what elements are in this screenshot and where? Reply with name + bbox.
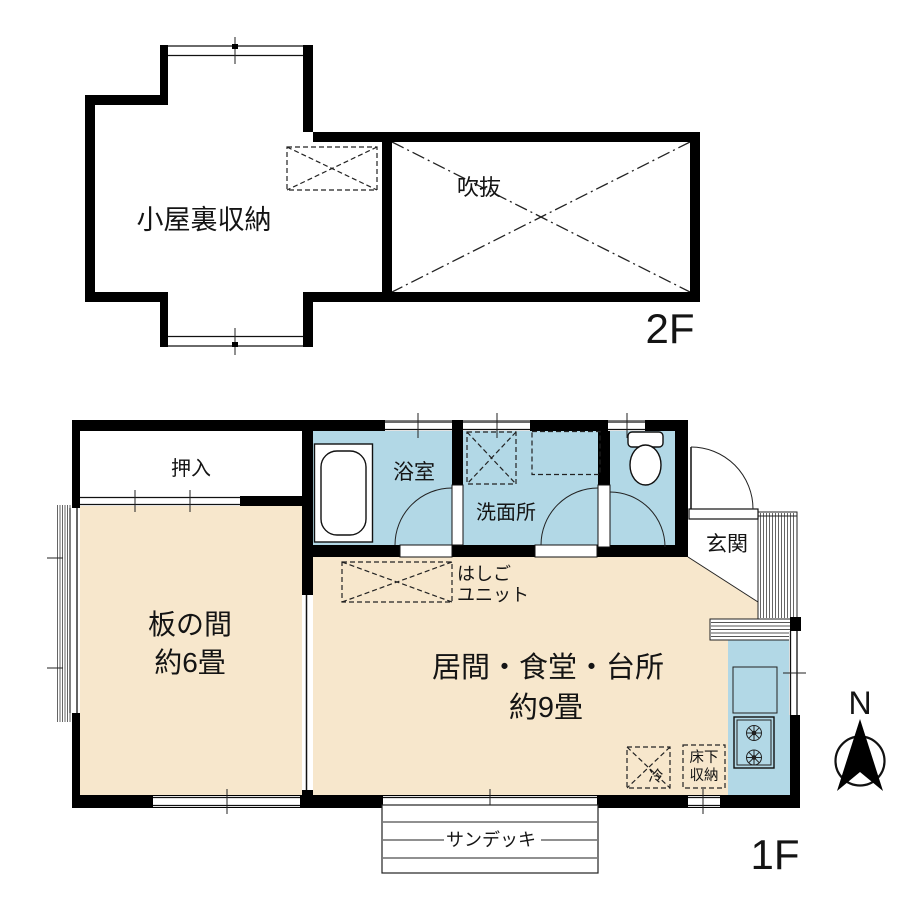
walls-2f — [85, 45, 700, 347]
bathtub-icon — [315, 444, 373, 542]
washroom-label: 洗面所 — [476, 501, 536, 524]
floor-1f: 押入 浴室 洗面所 玄関 板の間 約6畳 居間・食堂・台所 約9畳 はしご ユニ… — [47, 413, 806, 878]
entrance-label: 玄関 — [706, 533, 748, 556]
floor2-label: 2F — [645, 305, 694, 352]
fridge-label: 冷 — [648, 768, 663, 785]
compass: N — [836, 685, 885, 791]
floor1-label: 1F — [750, 831, 799, 878]
underfloor-label-line2: 収納 — [690, 767, 719, 784]
toilet-icon — [628, 432, 663, 485]
wood-room-label: 板の間 — [148, 609, 232, 640]
underfloor-label-line1: 床下 — [690, 749, 719, 766]
window-wood-room-left — [47, 505, 78, 722]
compass-north-label: N — [848, 685, 871, 721]
floor-plan-drawing: 小屋裏収納 吹抜 2F — [0, 0, 918, 918]
sundeck-label: サンデッキ — [446, 830, 536, 850]
ladder-label-line2: ユニット — [457, 585, 529, 605]
window-2f-bottom — [168, 328, 303, 355]
ladder-label-line1: はしご — [457, 564, 511, 584]
floor-plan-canvas: 小屋裏収納 吹抜 2F — [0, 0, 918, 918]
entrance-porch — [758, 512, 797, 619]
window-2f-top — [168, 37, 303, 64]
ladder-hatch-box-2f — [287, 147, 377, 190]
ldk-label: 居間・食堂・台所 — [432, 651, 664, 684]
bath-label: 浴室 — [393, 461, 435, 484]
floor-2f: 小屋裏収納 吹抜 2F — [85, 37, 700, 355]
north-arrow-icon — [837, 719, 883, 791]
kitchen-counter — [710, 619, 792, 640]
ldk-size: 約9畳 — [509, 691, 583, 724]
front-door — [689, 447, 758, 519]
wood-room-size: 約6畳 — [154, 647, 226, 678]
washroom-area — [463, 431, 598, 545]
attic-label: 小屋裏収納 — [137, 205, 272, 235]
closet-label: 押入 — [171, 457, 211, 480]
void-label: 吹抜 — [457, 175, 501, 200]
void-cross-icon — [392, 142, 690, 292]
